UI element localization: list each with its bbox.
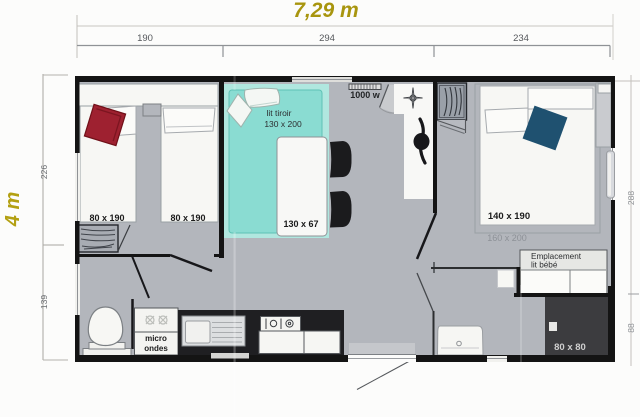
svg-text:7,29 m: 7,29 m bbox=[293, 0, 358, 22]
svg-text:lit tiroir: lit tiroir bbox=[266, 108, 291, 118]
svg-text:294: 294 bbox=[319, 33, 335, 44]
svg-text:1000 w: 1000 w bbox=[350, 90, 381, 100]
svg-text:160 x 200: 160 x 200 bbox=[487, 233, 527, 243]
svg-text:139: 139 bbox=[39, 295, 49, 309]
svg-text:234: 234 bbox=[513, 33, 529, 44]
svg-text:micro: micro bbox=[145, 334, 167, 343]
svg-text:140 x 190: 140 x 190 bbox=[488, 211, 530, 222]
svg-text:130 x 200: 130 x 200 bbox=[264, 119, 302, 129]
svg-text:88: 88 bbox=[626, 323, 636, 333]
svg-text:80 x 190: 80 x 190 bbox=[170, 213, 205, 223]
svg-text:130 x 67: 130 x 67 bbox=[283, 219, 318, 229]
svg-text:lit bébé: lit bébé bbox=[531, 261, 558, 270]
svg-text:ondes: ondes bbox=[144, 344, 168, 353]
svg-text:4 m: 4 m bbox=[2, 192, 24, 227]
svg-text:226: 226 bbox=[39, 165, 49, 179]
svg-text:80 x 190: 80 x 190 bbox=[89, 213, 124, 223]
svg-text:288: 288 bbox=[626, 191, 636, 205]
svg-text:190: 190 bbox=[137, 33, 153, 44]
svg-text:80 x 80: 80 x 80 bbox=[554, 342, 586, 353]
